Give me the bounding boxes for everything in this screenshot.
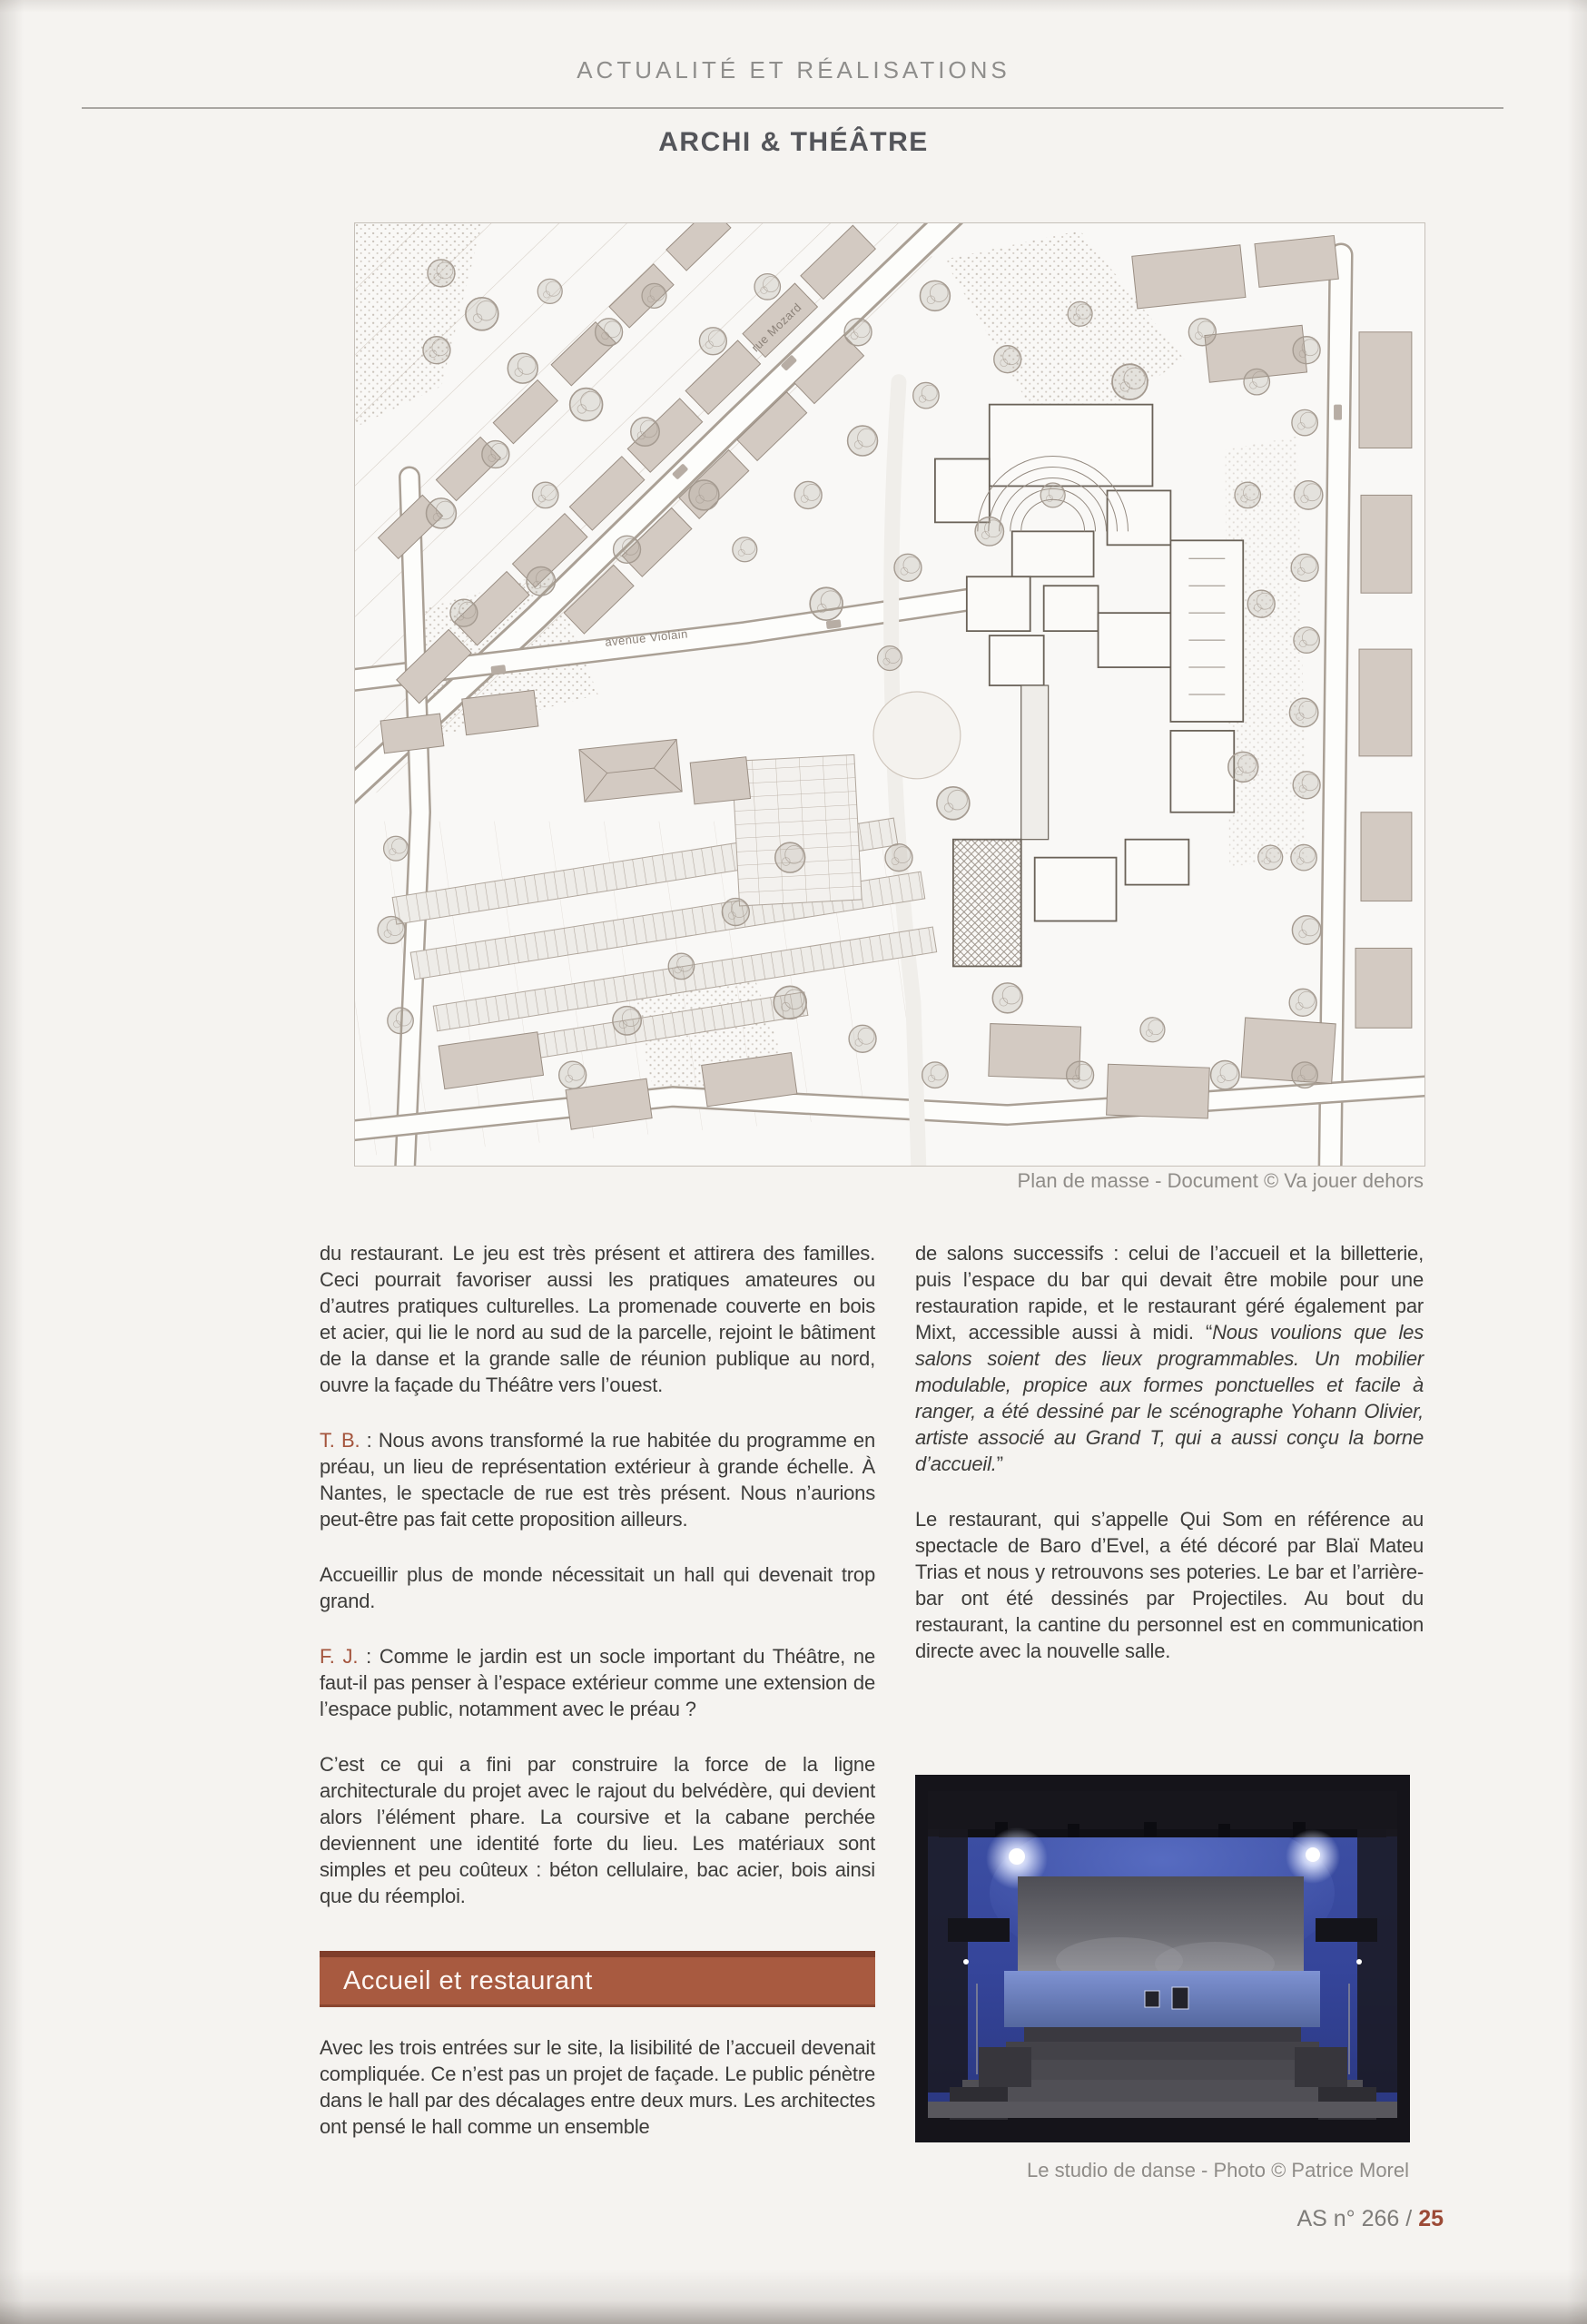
interview-text: : Nous avons transformé la rue habitée d…: [320, 1429, 875, 1531]
folio-label: AS n° 266 /: [1296, 2206, 1418, 2231]
dance-studio-photo: [915, 1775, 1410, 2142]
speaker-initials: F. J.: [320, 1645, 358, 1668]
header-rule: [82, 107, 1503, 109]
paragraph: Accueillir plus de monde nécessitait un …: [320, 1561, 875, 1614]
interview-text: : Comme le jardin est un socle important…: [320, 1645, 875, 1720]
paragraph: C’est ce qui a fini par construire la fo…: [320, 1751, 875, 1909]
speaker-initials: T. B.: [320, 1429, 360, 1452]
section-heading-box: Accueil et restaurant: [320, 1951, 875, 2007]
dance-studio-photo-drawing: [915, 1775, 1410, 2142]
paragraph-interview: F. J. : Comme le jardin est un socle imp…: [320, 1643, 875, 1722]
paragraph-text: ”: [997, 1452, 1003, 1475]
section-kicker: ACTUALITÉ ET RÉALISATIONS: [0, 56, 1587, 84]
page-folio: AS n° 266 / 25: [1296, 2206, 1444, 2232]
site-plan-figure: rue Mozard avenue Violain: [354, 222, 1425, 1167]
photo-caption: Le studio de danse - Photo © Patrice Mor…: [1027, 2159, 1409, 2182]
site-plan-drawing: rue Mozard avenue Violain: [355, 223, 1424, 1166]
paragraph: Le restaurant, qui s’appelle Qui Som en …: [915, 1506, 1424, 1664]
paragraph-with-quote: de salons successifs : celui de l’accuei…: [915, 1240, 1424, 1477]
plan-round-lawn: [873, 692, 961, 779]
paragraph: Avec les trois entrées sur le site, la l…: [320, 2034, 875, 2140]
plan-caption: Plan de masse - Document © Va jouer deho…: [1018, 1169, 1424, 1193]
paragraph-interview: T. B. : Nous avons transformé la rue hab…: [320, 1427, 875, 1532]
section-heading-label: Accueil et restaurant: [343, 1966, 593, 1995]
folio-page-number: 25: [1418, 2206, 1444, 2231]
magazine-page: ACTUALITÉ ET RÉALISATIONS ARCHI & THÉÂTR…: [0, 0, 1587, 2324]
paragraph: du restaurant. Le jeu est très présent e…: [320, 1240, 875, 1398]
quote-text: Nous voulions que les salons soient des …: [915, 1321, 1424, 1475]
left-column: du restaurant. Le jeu est très présent e…: [320, 1240, 875, 2169]
right-column: de salons successifs : celui de l’accuei…: [915, 1240, 1424, 1693]
article-title: ARCHI & THÉÂTRE: [0, 127, 1587, 158]
